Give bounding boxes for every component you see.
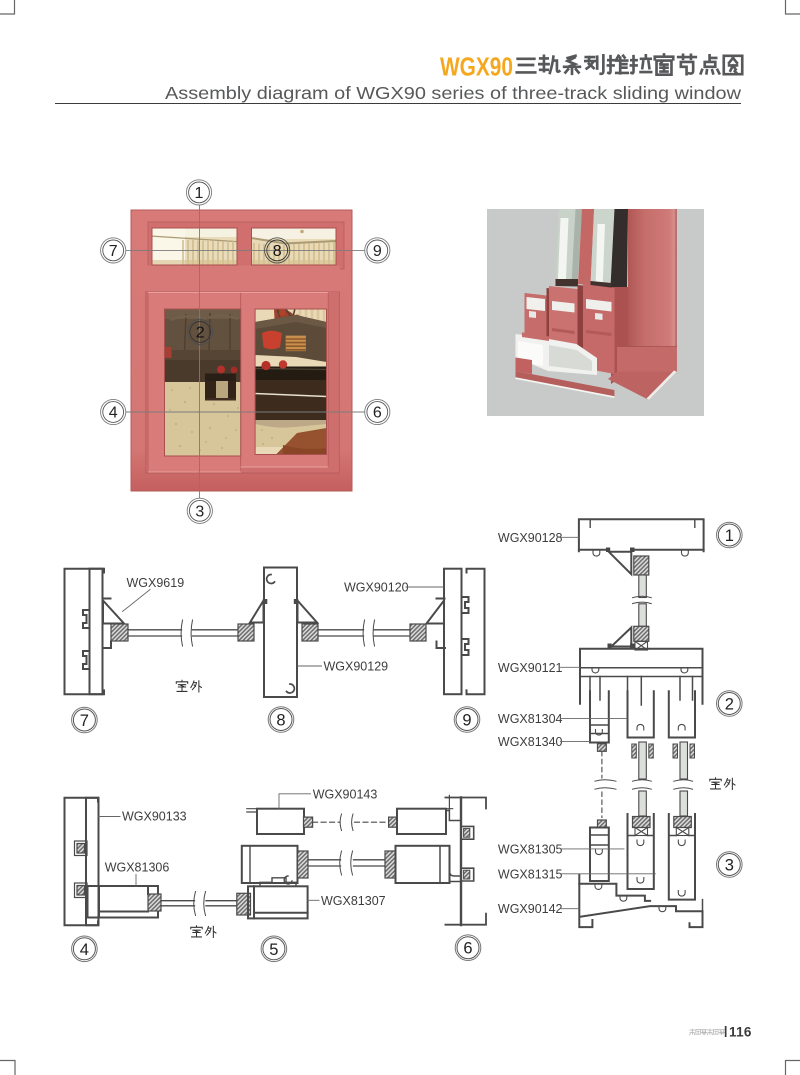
svg-text:5: 5 <box>269 941 278 959</box>
svg-text:3: 3 <box>195 503 204 520</box>
svg-text:WGX90133: WGX90133 <box>122 810 187 824</box>
svg-text:WGX81307: WGX81307 <box>321 894 386 908</box>
svg-text:7: 7 <box>80 712 89 730</box>
svg-text:4: 4 <box>80 941 89 959</box>
svg-text:6: 6 <box>373 405 382 422</box>
svg-text:WGX81305: WGX81305 <box>498 842 563 856</box>
svg-text:6: 6 <box>463 940 472 958</box>
svg-text:WGX81306: WGX81306 <box>105 861 170 875</box>
svg-text:WGX9619: WGX9619 <box>127 576 185 590</box>
svg-text:Assembly diagram of WGX90 seri: Assembly diagram of WGX90 series of thre… <box>165 83 741 103</box>
svg-text:WGX90129: WGX90129 <box>324 660 389 674</box>
svg-text:WGX90128: WGX90128 <box>498 531 563 545</box>
svg-text:8: 8 <box>276 712 285 730</box>
svg-text:WGX90: WGX90 <box>440 52 513 82</box>
svg-text:8: 8 <box>273 243 282 260</box>
svg-text:1: 1 <box>725 527 734 545</box>
svg-text:2: 2 <box>725 696 734 714</box>
svg-text:4: 4 <box>109 405 118 422</box>
svg-text:WGX90142: WGX90142 <box>498 902 563 916</box>
svg-text:WGX81340: WGX81340 <box>498 735 563 749</box>
svg-text:2: 2 <box>196 325 205 342</box>
svg-text:1: 1 <box>195 185 204 202</box>
svg-text:116: 116 <box>729 1024 752 1039</box>
svg-text:3: 3 <box>725 857 734 875</box>
svg-text:9: 9 <box>373 243 382 260</box>
svg-text:WGX81315: WGX81315 <box>498 867 563 881</box>
svg-text:9: 9 <box>462 712 471 730</box>
svg-text:7: 7 <box>109 243 118 260</box>
svg-text:WGX81304: WGX81304 <box>498 712 563 726</box>
svg-text:WGX90120: WGX90120 <box>344 581 409 595</box>
svg-text:WGX90121: WGX90121 <box>498 661 563 675</box>
svg-text:WGX90143: WGX90143 <box>313 787 378 801</box>
